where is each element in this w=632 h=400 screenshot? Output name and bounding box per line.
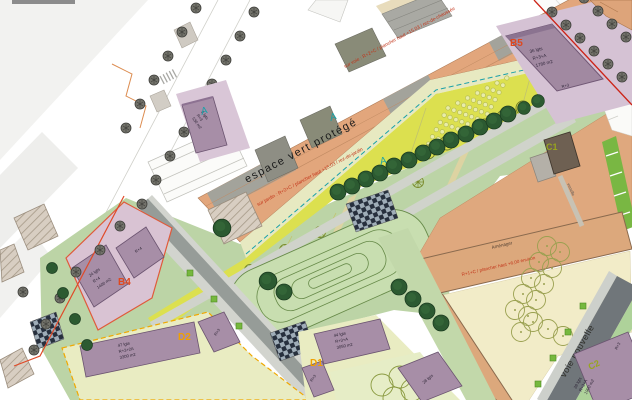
site-plan-map: Aménager R+1+C / plancher haut +6,00 env… (0, 0, 632, 400)
existing-building-hatched (0, 348, 34, 388)
crosswalk (160, 69, 177, 84)
zone-label-b5: B5 (510, 38, 523, 49)
site-plan-page: Aménager R+1+C / plancher haut +6,00 env… (0, 0, 632, 400)
curb-detail-orange (112, 64, 146, 128)
zone-label-b4: B4 (118, 277, 131, 288)
zone-label-c1: C1 (546, 142, 558, 152)
zone-label-d1: D1 (310, 358, 323, 369)
zone-label-d2: D2 (178, 332, 191, 343)
legend-bar (12, 0, 75, 4)
